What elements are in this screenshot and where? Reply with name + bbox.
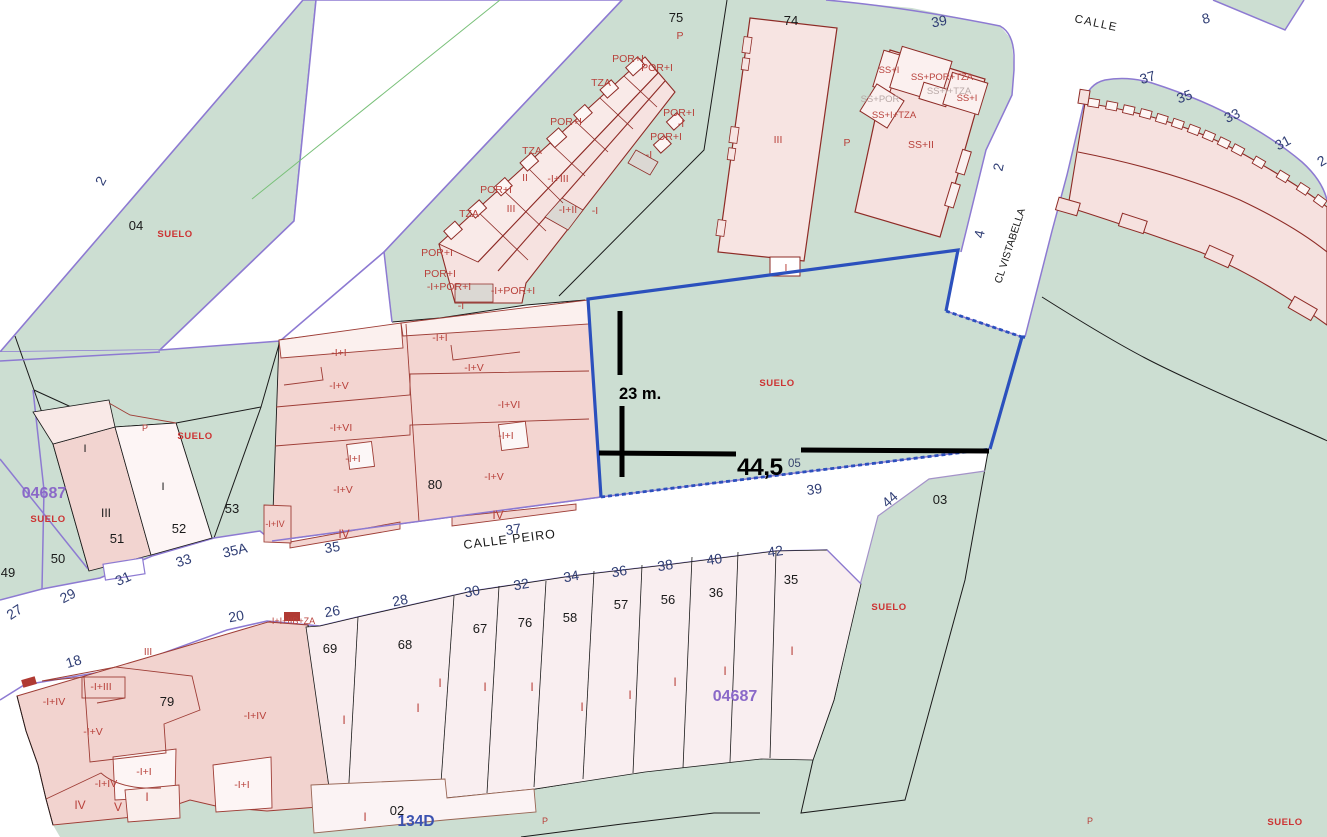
svg-text:-I+I: -I+I: [432, 332, 447, 344]
svg-text:IV: IV: [338, 527, 349, 541]
svg-text:-I+I: -I+I: [234, 779, 249, 791]
svg-text:-I+I: -I+I: [331, 347, 346, 359]
svg-text:I: I: [363, 810, 366, 824]
svg-text:49: 49: [1, 565, 15, 580]
svg-text:SUELO: SUELO: [157, 229, 192, 240]
svg-text:34: 34: [562, 567, 580, 585]
svg-text:II: II: [522, 172, 528, 184]
svg-text:I: I: [580, 700, 583, 714]
svg-text:74: 74: [784, 13, 798, 28]
svg-text:-I+VI: -I+VI: [330, 422, 352, 434]
svg-text:04687: 04687: [22, 485, 67, 502]
svg-text:04: 04: [129, 218, 143, 233]
svg-text:III: III: [144, 647, 152, 658]
svg-text:POR+I: POR+I: [480, 184, 512, 196]
svg-text:SS+II: SS+II: [908, 139, 934, 151]
svg-text:IV: IV: [492, 508, 503, 522]
svg-text:TZA: TZA: [591, 77, 611, 89]
svg-text:36: 36: [610, 562, 628, 580]
svg-text:-I+POR+I: -I+POR+I: [491, 285, 535, 297]
svg-text:III: III: [507, 203, 516, 215]
svg-text:I: I: [673, 675, 676, 689]
svg-text:TZA: TZA: [459, 208, 479, 220]
svg-text:-I+IV: -I+IV: [95, 778, 117, 790]
svg-text:05: 05: [788, 458, 801, 470]
svg-text:P: P: [676, 30, 683, 42]
svg-text:POR+I: POR+I: [650, 131, 682, 143]
svg-text:79: 79: [160, 694, 174, 709]
svg-text:39: 39: [930, 12, 949, 31]
svg-text:SUELO: SUELO: [1267, 817, 1302, 828]
svg-text:-I+I+IIB+ZA: -I+I+IIB+ZA: [269, 616, 315, 626]
svg-text:-I+V: -I+V: [484, 471, 504, 483]
svg-text:-I+VI: -I+VI: [498, 399, 520, 411]
svg-text:-I: -I: [458, 300, 464, 312]
svg-text:44,5: 44,5: [737, 454, 783, 481]
svg-text:-I+III: -I+III: [90, 681, 111, 693]
svg-text:-I+I: -I+I: [136, 766, 151, 778]
svg-text:P: P: [1087, 816, 1093, 826]
svg-text:SUELO: SUELO: [177, 431, 212, 442]
svg-text:POR+I: POR+I: [641, 62, 673, 74]
svg-text:30: 30: [463, 582, 482, 601]
svg-text:I: I: [723, 664, 726, 678]
svg-text:37: 37: [504, 520, 522, 538]
svg-text:32: 32: [512, 575, 530, 593]
svg-text:-I+II: -I+II: [559, 204, 577, 216]
svg-text:I: I: [628, 688, 631, 702]
svg-text:POR+I: POR+I: [612, 53, 644, 65]
svg-text:III: III: [774, 134, 783, 146]
svg-text:-I: -I: [592, 205, 598, 217]
svg-text:28: 28: [391, 591, 410, 610]
svg-text:-I: -I: [646, 149, 652, 161]
svg-text:IV: IV: [74, 798, 85, 812]
svg-text:-I: -I: [678, 118, 684, 130]
svg-text:134D: 134D: [397, 813, 434, 830]
svg-text:-I+IV: -I+IV: [265, 519, 284, 529]
svg-text:36: 36: [709, 585, 723, 600]
svg-text:58: 58: [563, 610, 577, 625]
svg-text:SS+POR: SS+POR: [861, 94, 900, 105]
svg-text:04687: 04687: [713, 688, 758, 705]
svg-text:42: 42: [766, 542, 784, 560]
svg-text:23 m.: 23 m.: [619, 385, 661, 403]
svg-text:69: 69: [323, 641, 337, 656]
svg-text:SS+I+TZA: SS+I+TZA: [872, 110, 917, 121]
svg-text:53: 53: [225, 501, 239, 516]
svg-text:TZA: TZA: [522, 145, 542, 157]
svg-text:35: 35: [784, 572, 798, 587]
svg-text:03: 03: [933, 492, 947, 507]
svg-text:POR+I: POR+I: [421, 247, 453, 259]
svg-text:-I+POR+I: -I+POR+I: [427, 281, 471, 293]
svg-text:I: I: [790, 644, 793, 658]
svg-text:20: 20: [227, 607, 245, 625]
svg-text:-I+V: -I+V: [333, 484, 353, 496]
svg-text:68: 68: [398, 637, 412, 652]
svg-text:51: 51: [110, 531, 124, 546]
svg-text:-I+V: -I+V: [464, 362, 484, 374]
svg-text:-I+III: -I+III: [547, 173, 568, 185]
svg-text:P: P: [142, 423, 148, 433]
svg-text:SUELO: SUELO: [30, 514, 65, 525]
svg-text:56: 56: [661, 592, 675, 607]
svg-text:I: I: [483, 680, 486, 694]
svg-text:SS+I: SS+I: [957, 93, 978, 104]
svg-text:52: 52: [172, 521, 186, 536]
svg-text:-I+I: -I+I: [498, 430, 513, 442]
svg-text:-I+IV: -I+IV: [43, 696, 65, 708]
svg-text:-I+IV: -I+IV: [244, 710, 266, 722]
svg-text:-I+I: -I+I: [345, 453, 360, 465]
svg-text:SS+POR+TZA: SS+POR+TZA: [911, 72, 974, 83]
svg-text:V: V: [114, 800, 122, 814]
svg-text:POR+I: POR+I: [550, 116, 582, 128]
svg-text:I: I: [342, 713, 345, 727]
svg-text:SS+I: SS+I: [879, 65, 900, 76]
svg-text:I: I: [438, 676, 441, 690]
svg-text:-I+V: -I+V: [83, 726, 103, 738]
svg-text:P: P: [843, 137, 850, 149]
svg-text:I: I: [83, 443, 86, 455]
svg-text:I: I: [530, 680, 533, 694]
svg-text:P: P: [542, 816, 548, 826]
svg-text:80: 80: [428, 477, 442, 492]
svg-text:57: 57: [614, 597, 628, 612]
svg-text:SUELO: SUELO: [871, 602, 906, 613]
svg-text:I: I: [416, 701, 419, 715]
svg-text:39: 39: [805, 480, 823, 498]
svg-text:I: I: [161, 481, 164, 493]
svg-text:67: 67: [473, 621, 487, 636]
svg-text:I: I: [145, 790, 148, 804]
svg-text:26: 26: [323, 602, 341, 620]
svg-text:76: 76: [518, 615, 532, 630]
svg-text:III: III: [101, 506, 111, 520]
svg-text:-I+V: -I+V: [329, 380, 349, 392]
svg-text:POR+I: POR+I: [424, 268, 456, 280]
svg-text:40: 40: [705, 550, 723, 568]
svg-text:SUELO: SUELO: [759, 378, 794, 389]
svg-text:38: 38: [656, 556, 674, 574]
svg-text:75: 75: [669, 10, 683, 25]
svg-text:50: 50: [51, 551, 65, 566]
